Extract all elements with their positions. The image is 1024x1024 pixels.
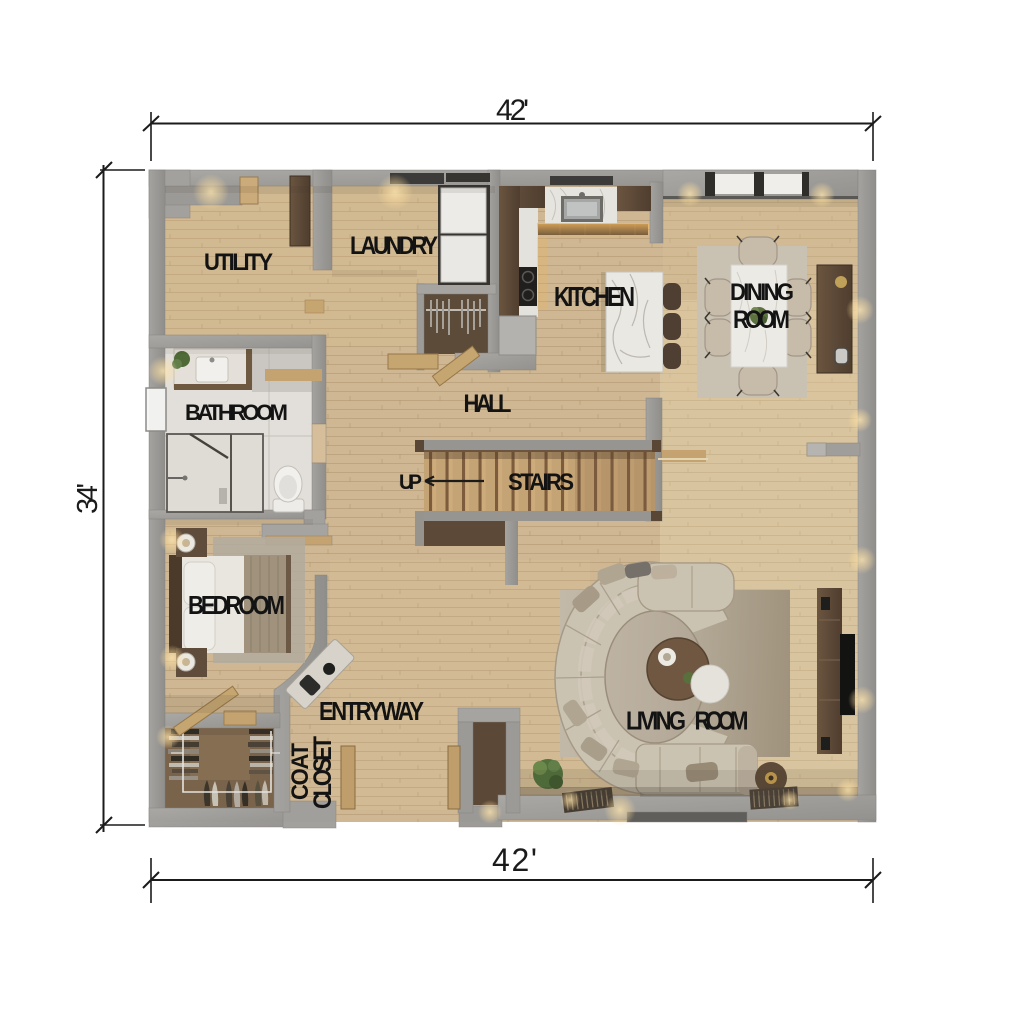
svg-text:STAIRS: STAIRS bbox=[508, 468, 574, 495]
svg-text:HALL: HALL bbox=[464, 390, 512, 417]
svg-text:BATHROOM: BATHROOM bbox=[185, 400, 288, 425]
svg-text:UP: UP bbox=[399, 471, 422, 495]
svg-text:ROOM: ROOM bbox=[733, 306, 790, 334]
svg-text:DINING: DINING bbox=[730, 278, 794, 305]
svg-text:ENTRYWAY: ENTRYWAY bbox=[319, 698, 424, 727]
svg-text:LIVING: LIVING bbox=[626, 707, 686, 736]
svg-text:34': 34' bbox=[72, 483, 104, 514]
svg-text:BEDROOM: BEDROOM bbox=[188, 591, 285, 620]
svg-text:CLOSET: CLOSET bbox=[309, 735, 337, 809]
svg-text:42': 42' bbox=[496, 94, 529, 127]
svg-text:UTILITY: UTILITY bbox=[204, 248, 273, 275]
svg-text:ROOM: ROOM bbox=[695, 707, 749, 736]
svg-text:42': 42' bbox=[492, 842, 537, 878]
svg-text:KITCHEN: KITCHEN bbox=[554, 282, 635, 313]
svg-text:LAUNDRY: LAUNDRY bbox=[350, 232, 438, 260]
